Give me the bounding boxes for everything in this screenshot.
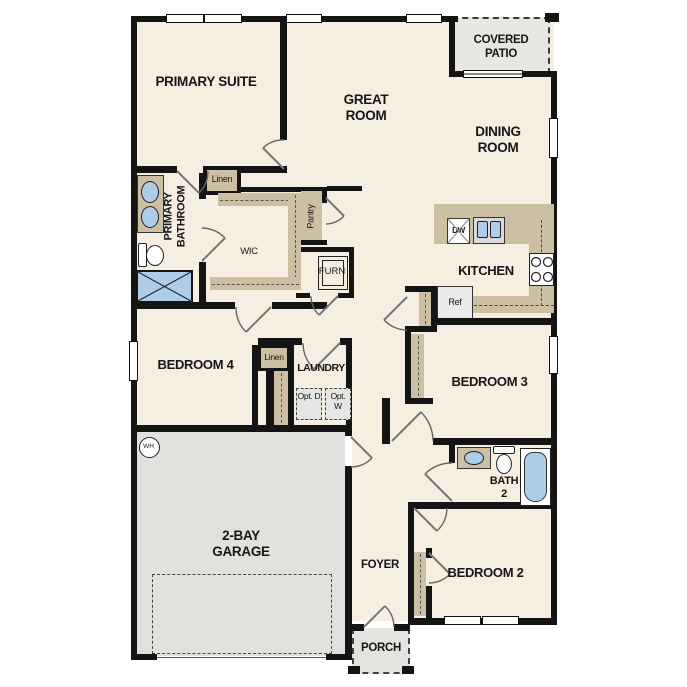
wic-shelf <box>210 277 301 290</box>
wall <box>237 166 287 173</box>
sink <box>141 181 159 203</box>
bedroom3-closet <box>411 334 424 398</box>
garage-door-dashed-outline <box>152 574 332 654</box>
window <box>549 118 558 158</box>
room-label-primary-suite: PRIMARY SUITE <box>150 74 262 90</box>
kitchen-sink-bowl <box>477 221 488 238</box>
room-label-linen-hall: Linen <box>258 352 290 362</box>
shower <box>136 270 193 303</box>
room-label-laundry: LAUNDRY <box>290 362 352 375</box>
wall <box>131 425 352 432</box>
wall <box>296 247 354 252</box>
wall <box>131 302 235 309</box>
wall <box>433 438 557 445</box>
wall <box>431 318 557 325</box>
wall <box>405 398 433 404</box>
wall <box>348 666 360 674</box>
room-label-pantry: Pantry <box>306 191 317 241</box>
wall <box>402 666 414 674</box>
bedroom2-closet <box>414 552 426 616</box>
window <box>129 341 138 381</box>
bath2-sink <box>464 451 484 465</box>
wall <box>322 187 327 203</box>
patio-slider-door <box>463 70 523 78</box>
wall <box>258 338 302 345</box>
room-label-covered-patio: COVERED PATIO <box>460 33 542 61</box>
stove <box>529 253 554 286</box>
room-label-bedroom4: BEDROOM 4 <box>138 357 253 373</box>
wic-shelf <box>288 193 301 290</box>
room-label-great-room: GREAT ROOM <box>330 92 402 125</box>
wall <box>426 586 432 618</box>
garage-door-opening <box>157 657 326 658</box>
wall <box>338 293 354 298</box>
room-label-garage: 2-BAY GARAGE <box>206 528 276 561</box>
wall <box>327 186 362 191</box>
window <box>286 14 322 23</box>
upper-cabinet-dashed <box>474 305 554 307</box>
wall <box>131 16 137 660</box>
refrigerator-label: Ref <box>437 297 473 308</box>
room-label-linen-upper: Linen <box>203 174 241 185</box>
room-label-wic: WIC <box>234 246 264 258</box>
wall <box>266 371 274 425</box>
wall <box>272 302 327 309</box>
coat-closet <box>419 292 431 326</box>
bath2-toilet <box>496 454 512 474</box>
room-label-dining-room: DINING ROOM <box>462 124 534 157</box>
window <box>549 336 558 374</box>
dishwasher-label: DW <box>447 226 470 236</box>
wall <box>449 17 455 76</box>
room-label-furnace: FURN <box>314 266 350 278</box>
toilet <box>146 245 164 266</box>
wall <box>394 624 410 631</box>
wall <box>345 432 352 436</box>
room-label-bedroom3: BEDROOM 3 <box>432 374 547 390</box>
bath2-toilet-tank <box>493 446 515 454</box>
kitchen-sink-bowl <box>490 221 501 238</box>
room-label-kitchen: KITCHEN <box>444 263 528 279</box>
wall <box>348 624 364 631</box>
water-heater-label: WH <box>139 443 158 451</box>
wall <box>426 548 432 558</box>
opt-washer-label: Opt. W <box>326 392 350 412</box>
room-label-bath2: BATH 2 <box>486 475 522 500</box>
wall <box>449 445 455 463</box>
room-label-porch: PORCH <box>354 641 408 655</box>
wall <box>382 398 390 444</box>
window <box>166 14 204 23</box>
room-label-primary-bathroom: PRIMARY BATHROOM <box>163 170 190 262</box>
window <box>444 616 481 625</box>
room-label-bedroom2: BEDROOM 2 <box>428 565 543 581</box>
window <box>482 616 519 625</box>
linen-closet-depth <box>274 371 288 425</box>
window <box>204 14 242 23</box>
wall <box>131 654 157 660</box>
wall <box>280 16 287 140</box>
room-label-foyer: FOYER <box>352 558 408 572</box>
bathtub-basin <box>524 452 547 502</box>
window <box>406 14 442 23</box>
opt-dryer-label: Opt. D <box>297 392 321 402</box>
floor-plan: DW Ref WH <box>0 0 687 687</box>
sink <box>141 206 159 228</box>
wall <box>296 293 310 298</box>
wall <box>545 13 559 22</box>
